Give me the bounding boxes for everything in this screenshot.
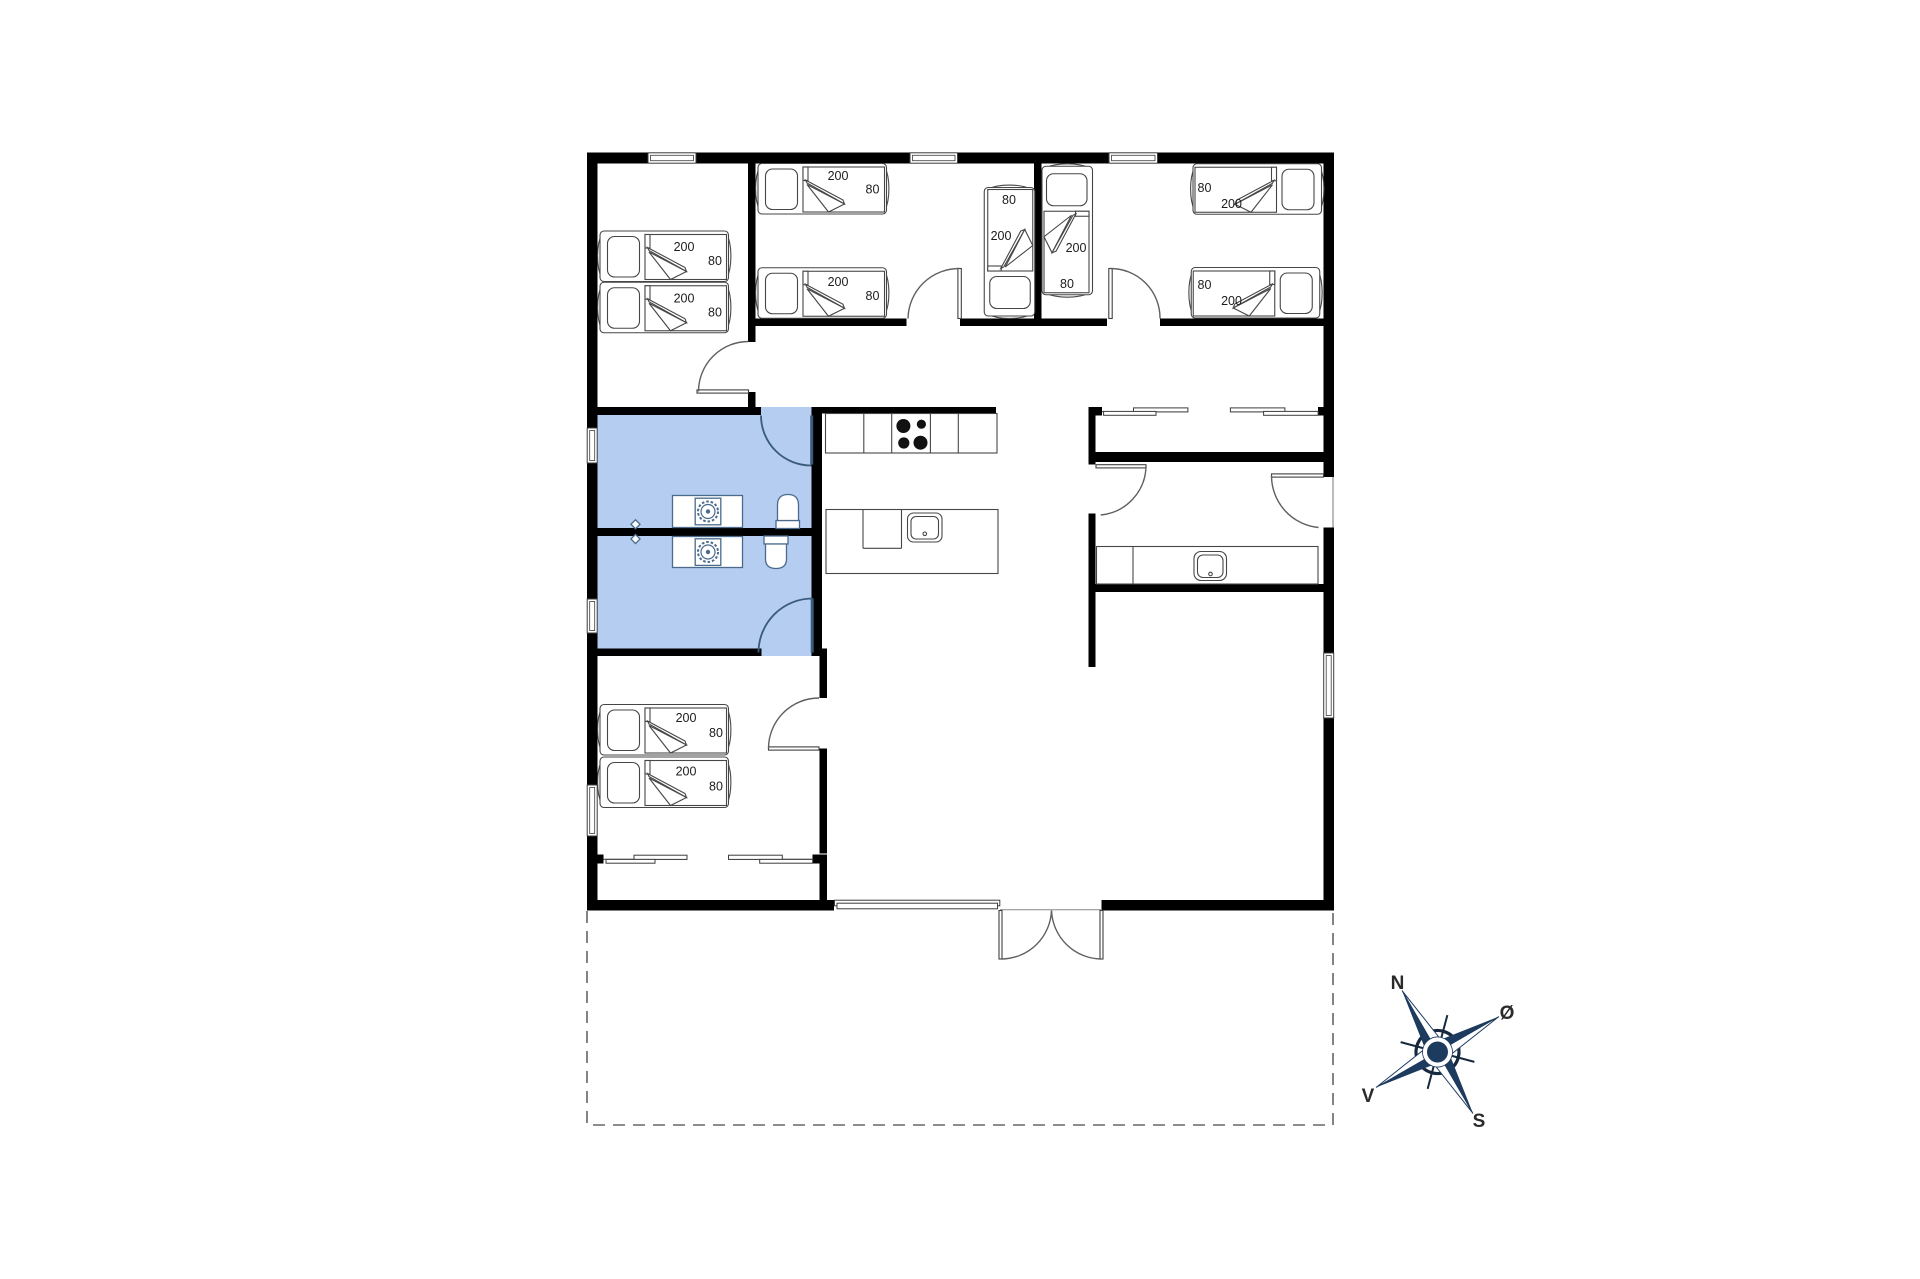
svg-text:200: 200 [828, 275, 849, 289]
svg-text:80: 80 [708, 306, 722, 320]
svg-text:80: 80 [866, 289, 880, 303]
svg-text:200: 200 [828, 169, 849, 183]
svg-text:200: 200 [1066, 241, 1087, 255]
svg-text:Ø: Ø [1500, 1003, 1515, 1024]
svg-text:V: V [1362, 1086, 1375, 1107]
svg-text:80: 80 [709, 726, 723, 740]
svg-text:80: 80 [1198, 181, 1212, 195]
svg-text:S: S [1473, 1111, 1486, 1132]
svg-text:200: 200 [676, 711, 697, 725]
svg-text:N: N [1391, 973, 1405, 994]
svg-text:200: 200 [1221, 294, 1242, 308]
svg-text:80: 80 [1060, 277, 1074, 291]
svg-text:80: 80 [709, 780, 723, 794]
svg-text:200: 200 [674, 240, 695, 254]
svg-text:200: 200 [674, 292, 695, 306]
svg-text:200: 200 [676, 765, 697, 779]
svg-text:80: 80 [1002, 193, 1016, 207]
svg-text:80: 80 [866, 183, 880, 197]
svg-text:200: 200 [991, 229, 1012, 243]
svg-text:80: 80 [708, 254, 722, 268]
svg-text:200: 200 [1221, 197, 1242, 211]
svg-text:80: 80 [1198, 278, 1212, 292]
